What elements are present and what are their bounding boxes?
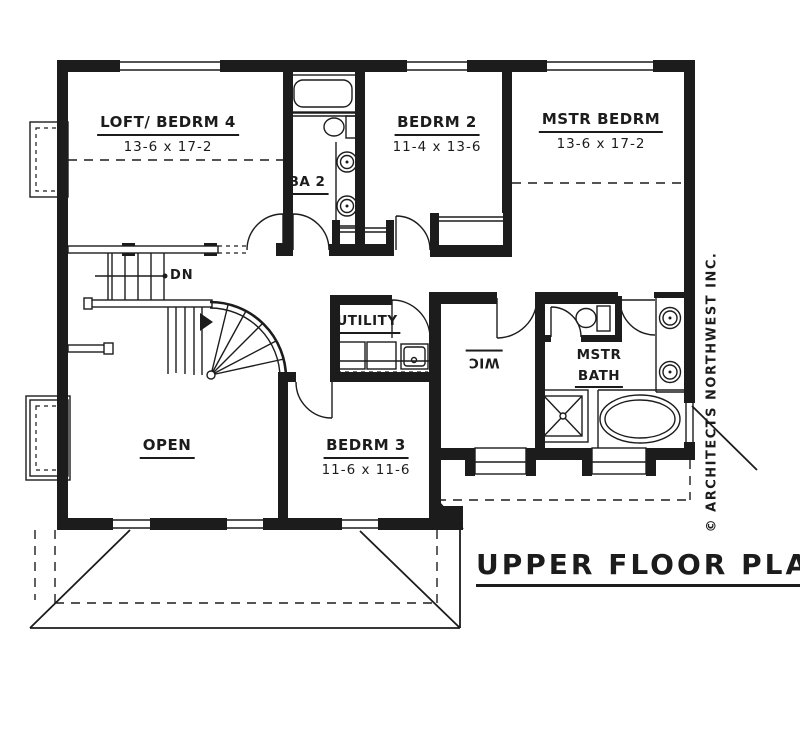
room-name-line1: MSTR [577,347,622,363]
room-name: BEDRM 3 [323,436,409,459]
room-label-ba2: BA 2 [286,171,329,195]
staircase [68,246,286,379]
room-dims: 13-6 x 17-2 [557,136,646,152]
stair-direction-label: DN [170,268,194,283]
toilet-mstr [597,306,610,331]
room-name: UTILITY [333,313,400,334]
room-name: WIC [465,350,502,371]
room-dims: 13-6 x 17-2 [124,139,213,155]
room-label-wic: WIC [465,350,502,374]
bath2-fixtures [289,75,357,226]
room-label-bedrm2: BEDRM 2 11-4 x 13-6 [393,112,482,156]
ceiling-break-lines [68,160,684,253]
room-label-mstr-bath: MSTR BATH [575,344,623,388]
room-name-line2: BATH [575,368,623,389]
room-name: MSTR BEDRM [539,110,663,133]
room-name: BA 2 [286,174,329,195]
room-label-bedrm3: BEDRM 3 11-6 x 11-6 [322,435,411,479]
room-name: LOFT/ BEDRM 4 [97,113,239,136]
architect-credit: © ARCHITECTS NORTHWEST INC. [705,252,720,533]
washer [337,342,365,369]
utility-fixtures [337,342,430,372]
room-label-loft-bedrm4: LOFT/ BEDRM 4 13-6 x 17-2 [97,112,239,156]
room-name: OPEN [140,436,195,459]
room-dims: 11-6 x 11-6 [322,462,411,478]
floor-plan: LOFT/ BEDRM 4 13-6 x 17-2 BEDRM 2 11-4 x… [0,0,800,730]
room-dims: 11-4 x 13-6 [393,139,482,155]
soaking-tub [600,395,680,443]
room-label-open: OPEN [140,435,195,459]
room-label-mstr-bedrm: MSTR BEDRM 13-6 x 17-2 [539,109,663,153]
room-name: BEDRM 2 [394,113,480,136]
drawing-title: UPPER FLOOR PLAN [476,548,800,587]
dryer [367,342,396,369]
room-label-utility: UTILITY [333,310,400,334]
floor-plan-canvas [0,0,800,730]
